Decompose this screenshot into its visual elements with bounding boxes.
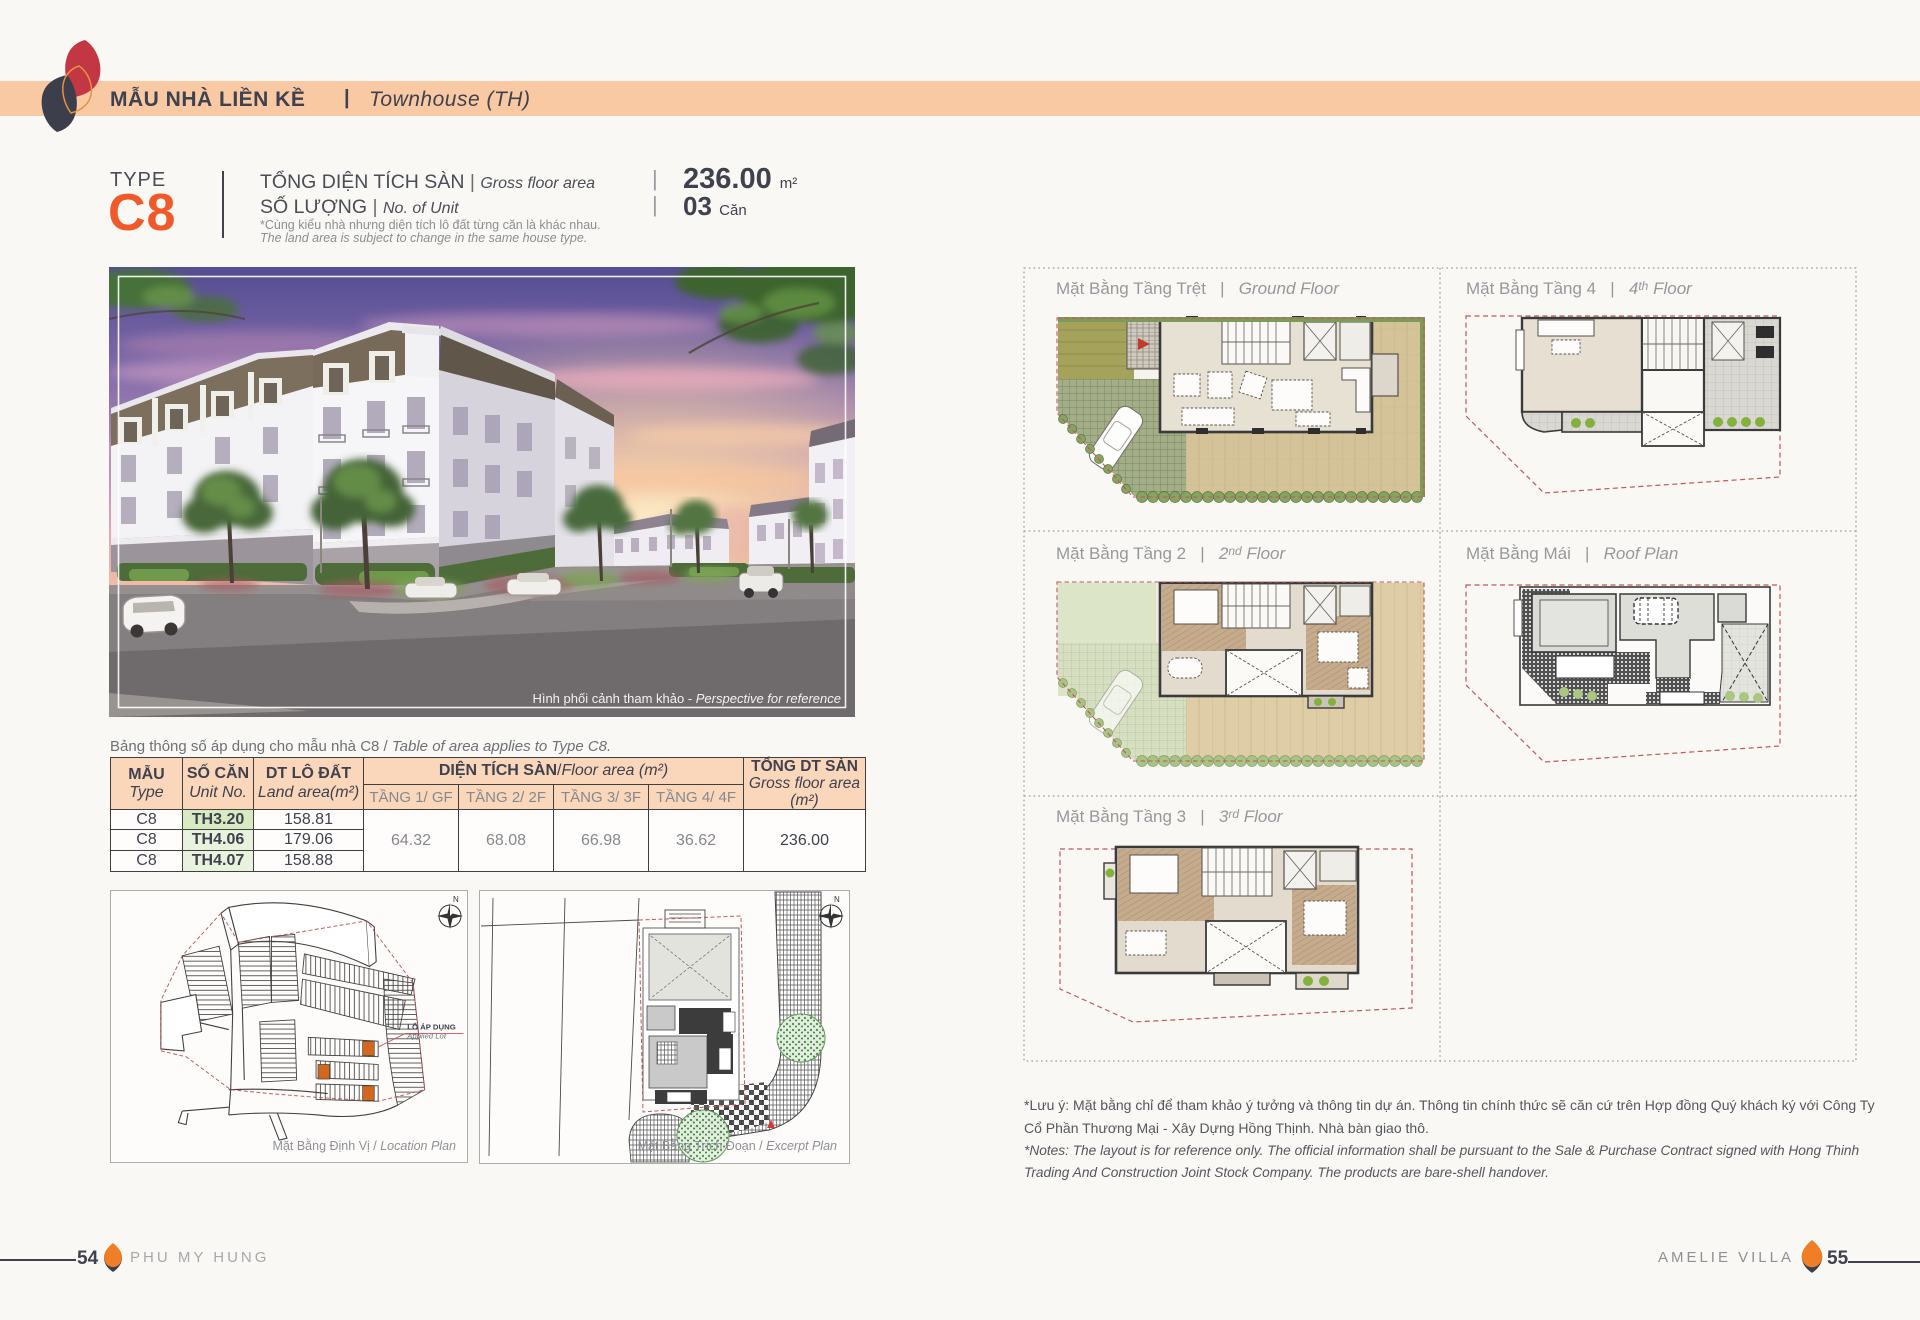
svg-text:N: N: [453, 895, 459, 904]
svg-text:N: N: [834, 895, 840, 904]
svg-text:LÔ ÁP DỤNG: LÔ ÁP DỤNG: [407, 1023, 456, 1032]
svg-text:Mặt Bằng Trích Đoạn / Excerpt: Mặt Bằng Trích Đoạn / Excerpt Plan: [638, 1138, 837, 1153]
svg-text:Hình phối cảnh tham khảo - Per: Hình phối cảnh tham khảo - Perspective f…: [532, 691, 841, 706]
svg-text:Applied Lot: Applied Lot: [406, 1031, 447, 1040]
svg-text:Mặt Bằng Định Vị / Location Pl: Mặt Bằng Định Vị / Location Plan: [273, 1138, 457, 1153]
